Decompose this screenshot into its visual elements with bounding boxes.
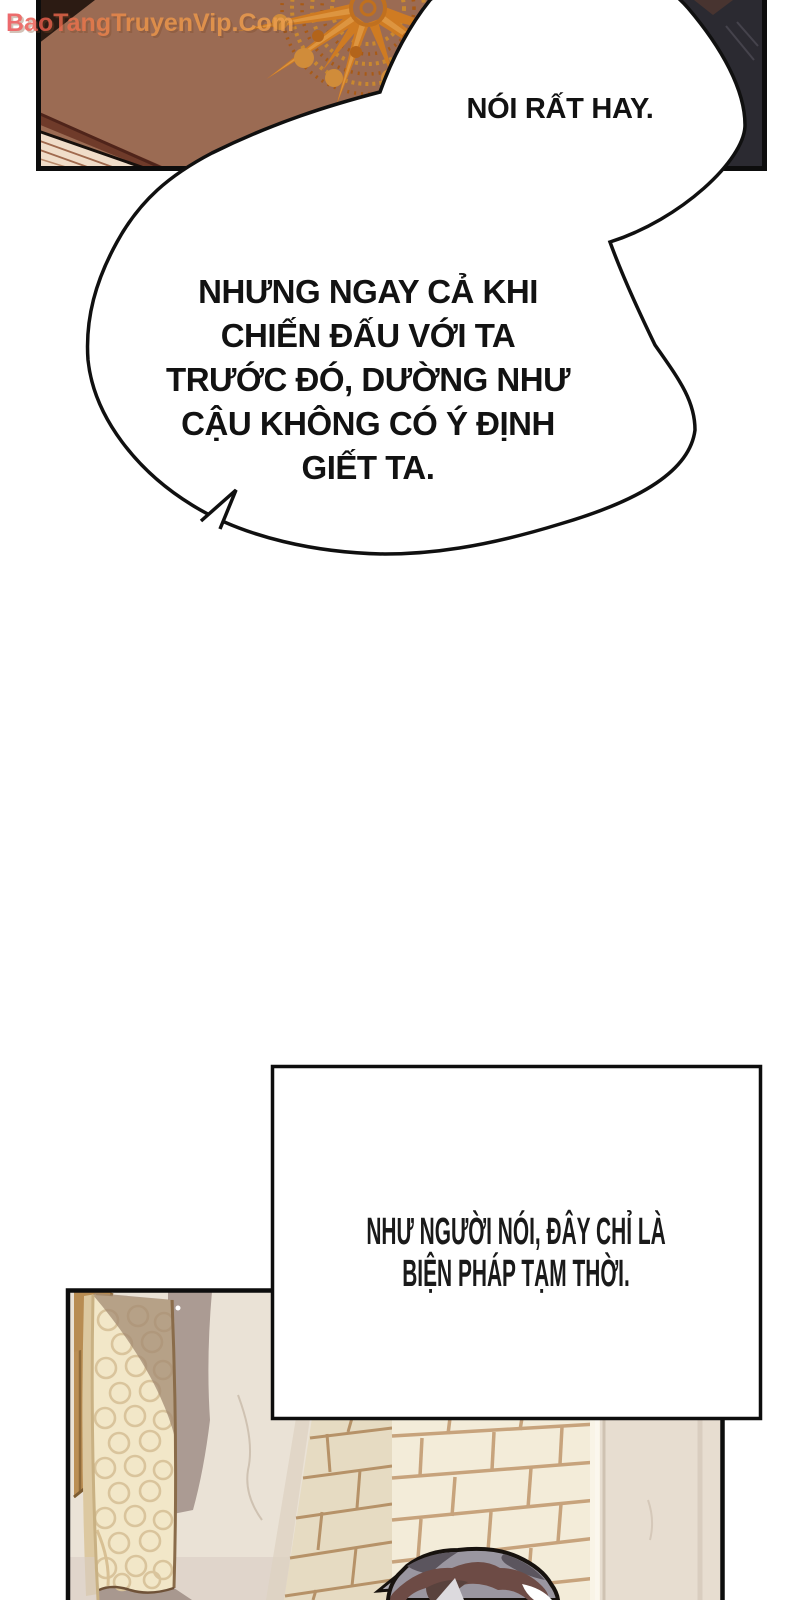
svg-text:TRƯỚC ĐÓ, DƯỜNG NHƯ: TRƯỚC ĐÓ, DƯỜNG NHƯ bbox=[166, 361, 571, 398]
svg-text:BIỆN PHÁP TẠM THỜI.: BIỆN PHÁP TẠM THỜI. bbox=[402, 1250, 630, 1295]
svg-text:NHƯNG NGAY CẢ KHI: NHƯNG NGAY CẢ KHI bbox=[198, 273, 538, 310]
svg-text:GIẾT TA.: GIẾT TA. bbox=[302, 449, 435, 486]
svg-text:BaoTangTruyenVip.Com: BaoTangTruyenVip.Com bbox=[6, 9, 294, 37]
svg-text:NHƯ NGƯỜI NÓI, ĐÂY CHỈ LÀ: NHƯ NGƯỜI NÓI, ĐÂY CHỈ LÀ bbox=[366, 1208, 665, 1253]
svg-text:CẬU KHÔNG CÓ Ý ĐỊNH: CẬU KHÔNG CÓ Ý ĐỊNH bbox=[181, 404, 555, 442]
svg-text:NÓI RẤT HAY.: NÓI RẤT HAY. bbox=[466, 91, 653, 125]
svg-text:CHIẾN ĐẤU VỚI TA: CHIẾN ĐẤU VỚI TA bbox=[221, 317, 516, 354]
